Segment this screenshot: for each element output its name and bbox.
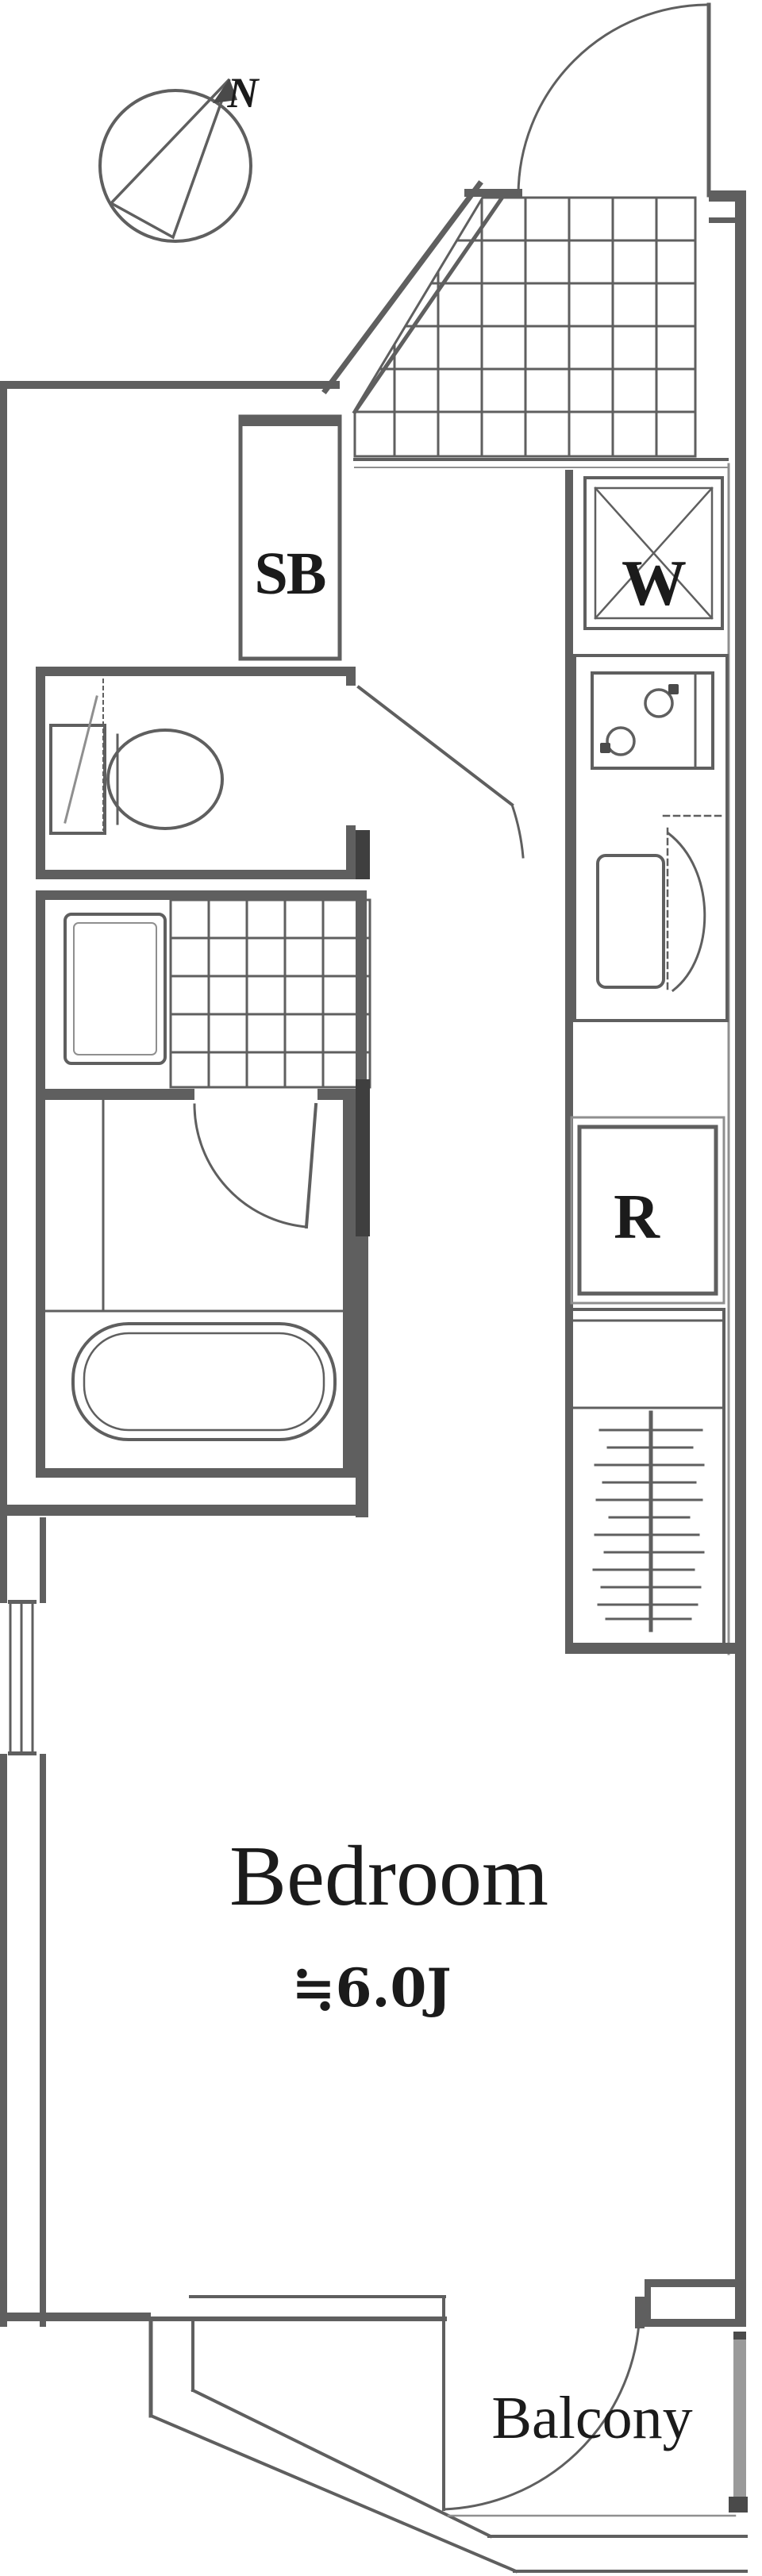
toilet-bowl-icon bbox=[108, 730, 222, 829]
right-outer-wall bbox=[735, 190, 746, 2327]
bathtub-inner-line bbox=[84, 1333, 324, 1430]
washroom-top-wall bbox=[36, 890, 367, 900]
diagonal-wall-outer bbox=[325, 184, 479, 390]
wall-stub-mid bbox=[356, 1079, 370, 1236]
bedroom-bottom-wall-right-inner bbox=[645, 2319, 746, 2327]
toilet-left-wall bbox=[36, 667, 45, 879]
floorplan-page: N SB bbox=[0, 0, 762, 2576]
vanity-unit-icon bbox=[65, 914, 165, 1063]
closet-hangers-icon bbox=[594, 1430, 703, 1619]
north-needle-icon bbox=[111, 79, 229, 237]
entrance-door bbox=[518, 5, 709, 195]
compass: N bbox=[100, 69, 260, 241]
bedroom-size-label: ≒6.0J bbox=[291, 1957, 451, 2019]
bath-right-wall bbox=[343, 1089, 356, 1478]
toilet-right-wall-upper bbox=[346, 667, 356, 686]
bath-top-wall-left bbox=[36, 1089, 194, 1100]
bedroom-bottom-wall-step bbox=[645, 2279, 651, 2327]
closet bbox=[567, 1309, 724, 1652]
left-outer-wall-upper bbox=[0, 381, 7, 1603]
wall-stub-upper bbox=[356, 830, 370, 879]
shoe-box-label: SB bbox=[255, 540, 325, 607]
genkan-tile-grid bbox=[355, 198, 695, 456]
burner-knob-icon bbox=[600, 743, 610, 753]
balcony-parapet-diagonal-inner bbox=[193, 2390, 491, 2536]
shoe-box: SB bbox=[241, 417, 340, 659]
toilet-door-swing-arc bbox=[512, 805, 523, 857]
balcony-right-wall-top-cap bbox=[733, 2332, 746, 2340]
fridge-label: R bbox=[614, 1182, 660, 1252]
washroom bbox=[36, 830, 370, 1089]
bedroom-bottom-wall-right-outer bbox=[645, 2279, 746, 2287]
toilet-door-leaf bbox=[359, 687, 512, 805]
bath-corridor-wall bbox=[356, 1236, 368, 1517]
north-label: N bbox=[227, 69, 260, 117]
bedroom-label: Bedroom bbox=[229, 1829, 548, 1924]
window-glazing-lines bbox=[10, 1604, 33, 1751]
bath-left-wall bbox=[36, 1089, 45, 1478]
washroom-tile-grid bbox=[171, 900, 370, 1087]
washroom-tile-outline bbox=[171, 900, 370, 1087]
floorplan-svg: N SB bbox=[0, 0, 762, 2576]
vanity-inner-line bbox=[74, 923, 156, 1055]
sink-curve-line bbox=[668, 833, 705, 990]
left-inner-wall-upper bbox=[40, 1517, 46, 1603]
burner-icon bbox=[645, 690, 672, 717]
bathtub-icon bbox=[73, 1324, 335, 1440]
washroom-left-wall bbox=[36, 890, 45, 1089]
bath-door-swing-arc bbox=[194, 1105, 306, 1227]
top-left-wall bbox=[0, 381, 340, 389]
toilet-bottom-wall bbox=[36, 870, 356, 879]
bedroom-top-left-wall bbox=[7, 1505, 368, 1516]
balcony-right-wall bbox=[733, 2332, 746, 2513]
bathroom bbox=[7, 1079, 370, 1517]
bedroom: Bedroom ≒6.0J bbox=[5, 1829, 746, 2328]
balcony-parapet-diagonal-outer bbox=[151, 2416, 516, 2571]
left-outer-wall-lower bbox=[0, 1754, 7, 2327]
washer-label: W bbox=[622, 547, 686, 619]
shoe-box-cabinet bbox=[241, 417, 340, 659]
burner-knob-icon bbox=[668, 684, 679, 694]
shoe-box-top-band bbox=[241, 417, 340, 426]
toilet-tank-icon bbox=[51, 725, 105, 833]
closet-bottom-wall bbox=[565, 1643, 746, 1654]
top-wall-left-of-entry bbox=[464, 189, 522, 197]
balcony-label: Balcony bbox=[491, 2385, 692, 2451]
balcony: Balcony bbox=[151, 2320, 748, 2571]
entry-door-swing-arc bbox=[518, 5, 709, 195]
sink-icon bbox=[598, 855, 664, 987]
toilet-top-wall bbox=[36, 667, 356, 676]
toilet-right-wall-lower bbox=[346, 825, 356, 879]
balcony-right-wall-bottom-cap bbox=[729, 2497, 748, 2513]
bath-bottom-wall bbox=[36, 1468, 356, 1478]
bath-door-leaf bbox=[306, 1105, 316, 1227]
left-inner-wall-lower bbox=[40, 1754, 46, 2327]
kitchen: W R bbox=[565, 470, 746, 1654]
toilet-room bbox=[36, 667, 523, 879]
bedroom-left-window bbox=[8, 1517, 46, 2327]
toilet-deco-diagonal bbox=[65, 697, 97, 822]
burner-icon bbox=[607, 728, 634, 755]
